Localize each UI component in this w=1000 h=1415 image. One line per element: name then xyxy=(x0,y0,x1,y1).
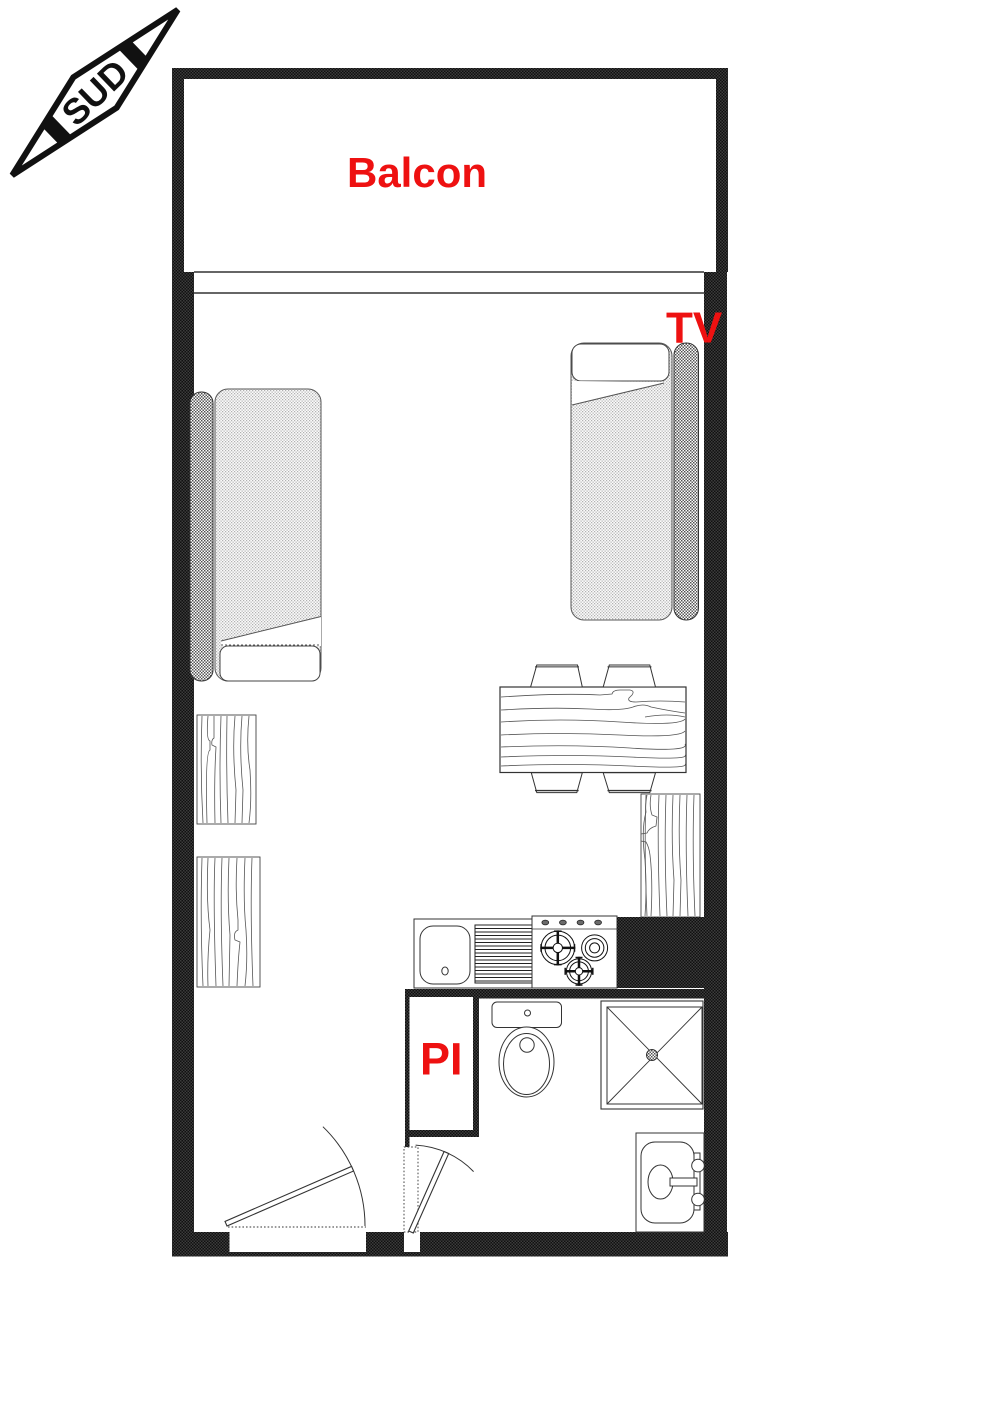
svg-text:TV: TV xyxy=(666,304,723,353)
svg-text:Balcon: Balcon xyxy=(347,149,487,196)
svg-text:PI: PI xyxy=(420,1034,463,1085)
